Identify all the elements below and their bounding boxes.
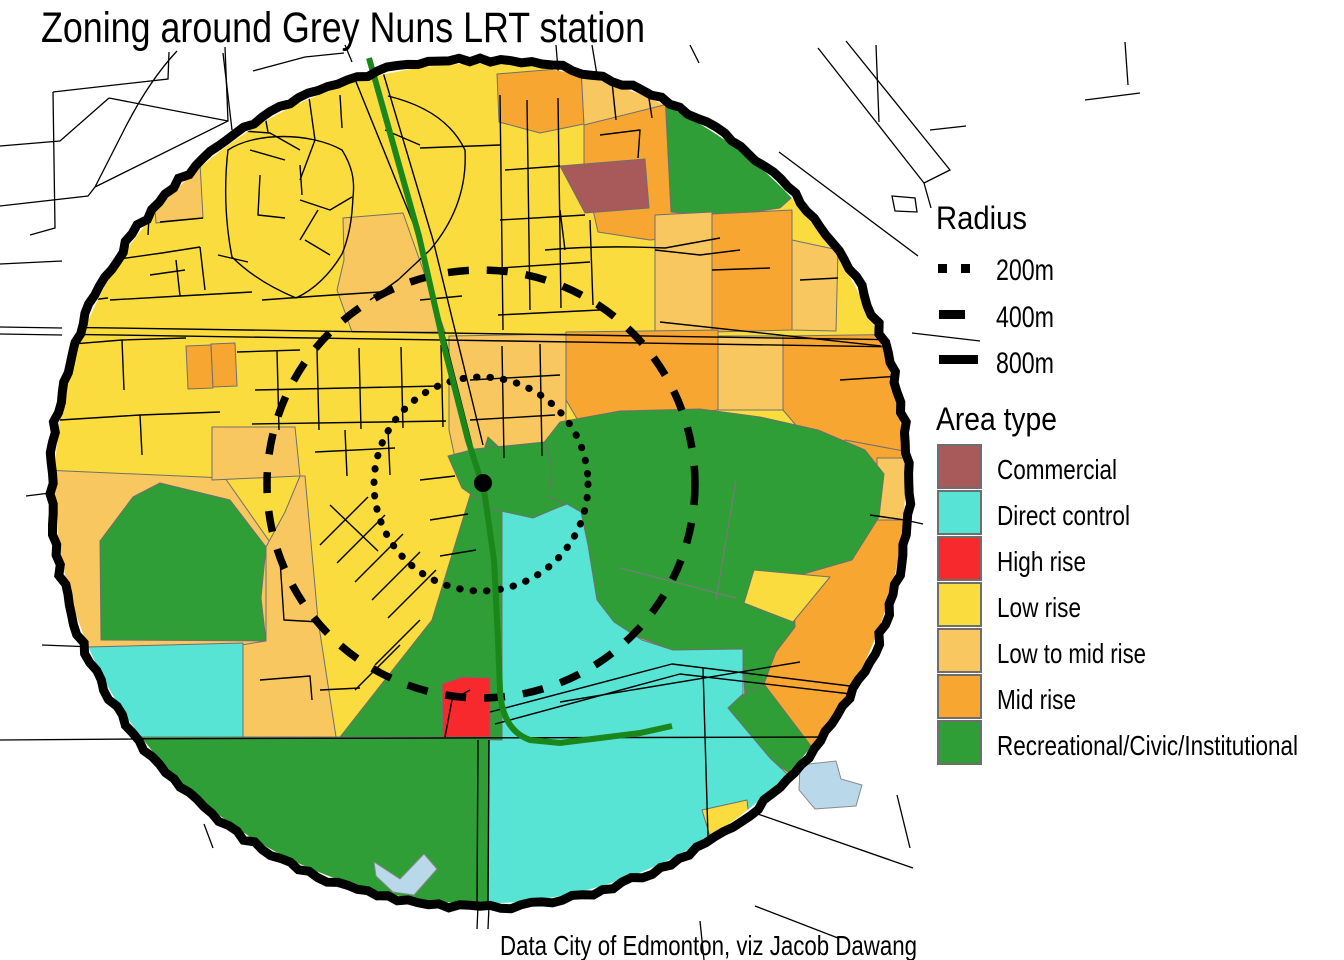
svg-text:Data City of Edmonton, viz Jac: Data City of Edmonton, viz Jacob Dawang xyxy=(500,930,917,960)
svg-text:Area type: Area type xyxy=(936,401,1057,437)
svg-text:Zoning around Grey Nuns LRT st: Zoning around Grey Nuns LRT station xyxy=(41,4,645,52)
svg-text:400m: 400m xyxy=(996,301,1054,334)
svg-text:Direct control: Direct control xyxy=(997,500,1130,531)
svg-text:Recreational/Civic/Institution: Recreational/Civic/Institutional xyxy=(997,730,1298,761)
svg-text:High rise: High rise xyxy=(997,546,1086,577)
svg-text:Mid rise: Mid rise xyxy=(997,684,1076,715)
svg-text:800m: 800m xyxy=(996,347,1054,380)
svg-text:200m: 200m xyxy=(996,254,1054,287)
svg-text:Commercial: Commercial xyxy=(997,454,1117,485)
svg-text:Low to mid rise: Low to mid rise xyxy=(997,638,1146,669)
svg-text:Radius: Radius xyxy=(936,200,1027,236)
svg-text:Low rise: Low rise xyxy=(997,592,1081,623)
